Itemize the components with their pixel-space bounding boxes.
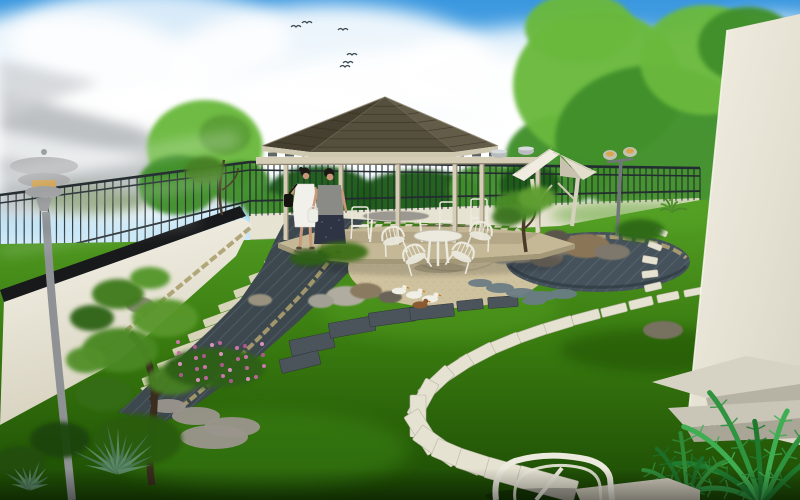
garden-render-image: [0, 0, 800, 500]
garden-scene: [0, 0, 800, 500]
vignette: [0, 468, 800, 500]
